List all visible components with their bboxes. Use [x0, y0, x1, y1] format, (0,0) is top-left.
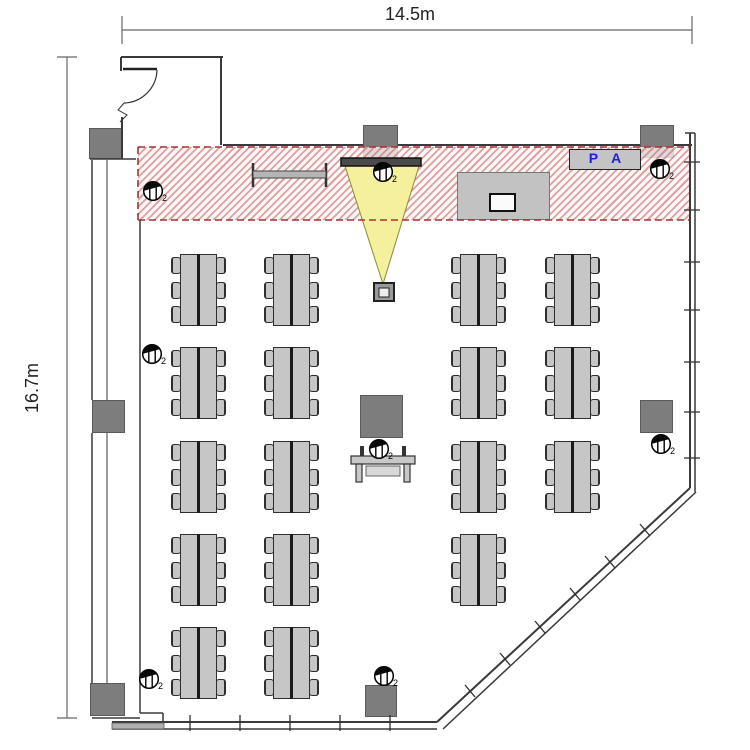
- chair: [451, 562, 461, 579]
- chair: [309, 350, 319, 367]
- chair: [171, 537, 181, 554]
- chair: [264, 375, 274, 392]
- chair: [309, 493, 319, 510]
- chair: [545, 469, 555, 486]
- outlet-subscript: 2: [161, 356, 166, 366]
- chair: [171, 630, 181, 647]
- table-unit: [545, 347, 600, 419]
- chair: [545, 257, 555, 274]
- chair: [264, 444, 274, 461]
- chair: [496, 257, 506, 274]
- chair: [264, 655, 274, 672]
- chair: [590, 257, 600, 274]
- table-unit: [451, 254, 506, 326]
- chair: [171, 375, 181, 392]
- chair: [171, 282, 181, 299]
- chair: [264, 350, 274, 367]
- chair: [171, 679, 181, 696]
- table-unit: [451, 441, 506, 513]
- chair: [216, 350, 226, 367]
- chair: [264, 493, 274, 510]
- outlet-subscript: 2: [158, 681, 163, 691]
- table-unit: [171, 441, 226, 513]
- chair: [171, 562, 181, 579]
- chair: [309, 306, 319, 323]
- chair: [264, 282, 274, 299]
- chair: [590, 306, 600, 323]
- pillar: [365, 685, 397, 717]
- chair: [171, 493, 181, 510]
- chair: [590, 375, 600, 392]
- chair: [264, 586, 274, 603]
- chair: [496, 562, 506, 579]
- table-divider: [290, 627, 293, 699]
- chair: [216, 655, 226, 672]
- height-dimension-label: 16.7m: [22, 363, 42, 413]
- pa-label: P A: [589, 150, 627, 166]
- chair: [451, 586, 461, 603]
- chair: [171, 469, 181, 486]
- table-divider: [290, 254, 293, 326]
- pillar: [89, 128, 123, 159]
- chair: [590, 444, 600, 461]
- table-divider: [197, 627, 200, 699]
- chair: [545, 444, 555, 461]
- chair: [309, 257, 319, 274]
- chair: [590, 493, 600, 510]
- chair: [590, 282, 600, 299]
- table-divider: [477, 441, 480, 513]
- chair: [264, 469, 274, 486]
- chair: [309, 444, 319, 461]
- chair: [451, 350, 461, 367]
- chair: [216, 469, 226, 486]
- chair: [451, 493, 461, 510]
- chair: [590, 350, 600, 367]
- chair: [264, 630, 274, 647]
- chair: [216, 306, 226, 323]
- chair: [545, 399, 555, 416]
- floor-plan: P A: [0, 0, 750, 750]
- table-divider: [477, 534, 480, 606]
- chair: [545, 282, 555, 299]
- chair: [264, 399, 274, 416]
- pa-speaker-box: P A: [569, 149, 641, 170]
- chair: [496, 493, 506, 510]
- bottom-wall-sill: [112, 723, 164, 729]
- chair: [264, 562, 274, 579]
- chair: [216, 537, 226, 554]
- table-unit: [545, 254, 600, 326]
- table-divider: [197, 347, 200, 419]
- pillar: [360, 395, 403, 438]
- table-divider: [477, 254, 480, 326]
- chair: [309, 679, 319, 696]
- chair: [264, 306, 274, 323]
- chair: [496, 469, 506, 486]
- chair: [216, 493, 226, 510]
- stage-desk-monitor: [489, 193, 516, 212]
- chair: [545, 306, 555, 323]
- chair: [451, 469, 461, 486]
- chair: [451, 375, 461, 392]
- power-outlet-symbol: 2: [650, 432, 675, 456]
- chair: [496, 399, 506, 416]
- table-unit: [171, 627, 226, 699]
- table-divider: [290, 347, 293, 419]
- table-divider: [290, 441, 293, 513]
- plan-linework: 14.5m 16.7m 22222222: [0, 0, 750, 750]
- table-divider: [290, 534, 293, 606]
- table-unit: [171, 254, 226, 326]
- table-unit: [451, 347, 506, 419]
- chair: [451, 537, 461, 554]
- speaker-table: [351, 446, 415, 482]
- chair: [496, 306, 506, 323]
- pillar: [92, 400, 125, 433]
- chair: [496, 375, 506, 392]
- chair: [171, 257, 181, 274]
- chair: [216, 586, 226, 603]
- entrance-door: [118, 69, 157, 122]
- chair: [216, 282, 226, 299]
- chair: [545, 375, 555, 392]
- table-divider: [197, 254, 200, 326]
- chair: [216, 257, 226, 274]
- outlet-subscript: 2: [388, 451, 393, 461]
- chair: [496, 444, 506, 461]
- chair: [309, 469, 319, 486]
- chair: [590, 469, 600, 486]
- chair: [496, 586, 506, 603]
- chair: [309, 630, 319, 647]
- chair: [171, 655, 181, 672]
- chair: [309, 655, 319, 672]
- table-divider: [571, 441, 574, 513]
- table-unit: [545, 441, 600, 513]
- projector: [374, 283, 394, 301]
- chair: [309, 282, 319, 299]
- chair: [545, 493, 555, 510]
- chair: [216, 630, 226, 647]
- table-divider: [197, 441, 200, 513]
- chair: [545, 350, 555, 367]
- chair: [451, 444, 461, 461]
- table-unit: [264, 441, 319, 513]
- table-divider: [197, 534, 200, 606]
- table-unit: [264, 254, 319, 326]
- table-divider: [571, 347, 574, 419]
- table-unit: [171, 534, 226, 606]
- table-unit: [264, 534, 319, 606]
- chair: [216, 375, 226, 392]
- chair: [590, 399, 600, 416]
- power-outlet-symbol: 2: [368, 437, 393, 461]
- outlet-subscript: 2: [670, 446, 675, 456]
- pillar: [90, 683, 125, 716]
- chair: [309, 562, 319, 579]
- power-outlet-symbol: 2: [138, 667, 163, 691]
- chair: [216, 399, 226, 416]
- table-unit: [171, 347, 226, 419]
- chair: [171, 444, 181, 461]
- power-outlet-symbol: 2: [141, 342, 166, 366]
- table-unit: [264, 627, 319, 699]
- chair: [451, 399, 461, 416]
- chair: [171, 399, 181, 416]
- width-dimension-label: 14.5m: [385, 4, 435, 24]
- chair: [309, 586, 319, 603]
- chair: [451, 282, 461, 299]
- chair: [216, 444, 226, 461]
- chair: [309, 537, 319, 554]
- stage-desk: [457, 172, 550, 220]
- wall-break-symbol: [118, 103, 127, 122]
- chair: [496, 350, 506, 367]
- chair: [309, 399, 319, 416]
- chair: [216, 562, 226, 579]
- chair: [216, 679, 226, 696]
- chair: [264, 679, 274, 696]
- chair: [309, 375, 319, 392]
- table-divider: [477, 347, 480, 419]
- pillar: [640, 400, 673, 433]
- chair: [451, 257, 461, 274]
- chair: [496, 282, 506, 299]
- chair: [171, 586, 181, 603]
- chair: [451, 306, 461, 323]
- chair: [264, 537, 274, 554]
- chair: [171, 306, 181, 323]
- chair: [496, 537, 506, 554]
- table-unit: [451, 534, 506, 606]
- table-divider: [571, 254, 574, 326]
- table-unit: [264, 347, 319, 419]
- chair: [264, 257, 274, 274]
- chair: [171, 350, 181, 367]
